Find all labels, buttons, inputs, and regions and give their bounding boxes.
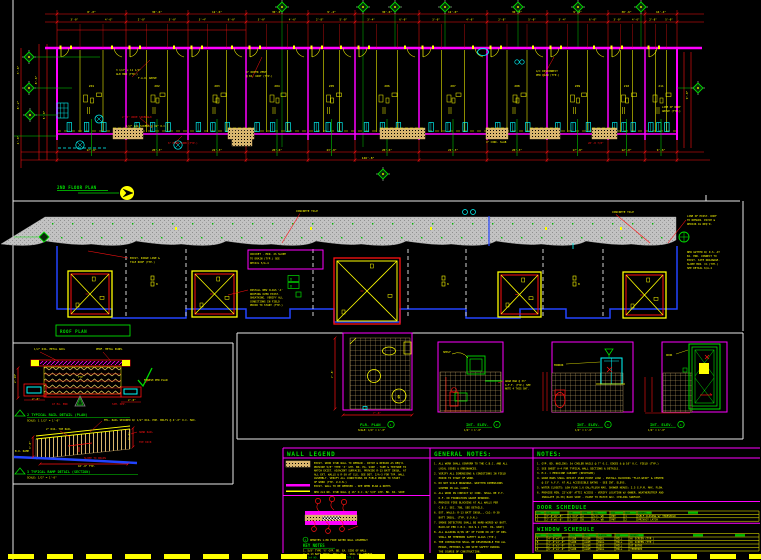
svg-text:4. ALL WOOD IN CONTACT W/ CONC: 4. ALL WOOD IN CONTACT W/ CONC. SHALL BE…	[434, 491, 504, 495]
roof-cricket-boxes	[68, 258, 666, 324]
svg-text:SHEATHING. VERIFY ALL: SHEATHING. VERIFY ALL	[250, 296, 283, 300]
svg-text:EXIST. SITE DRAINAGE.: EXIST. SITE DRAINAGE.	[687, 258, 720, 262]
general-notes-body: 1. ALL WORK SHALL CONFORM TO THE C.B.C. …	[434, 462, 508, 554]
svg-text:6" HIGH CURB (TYP.): 6" HIGH CURB (TYP.)	[168, 141, 198, 145]
legend-panel: WALL LEGENDGENERAL NOTES:NOTES:EXIST. WO…	[283, 448, 760, 560]
svg-text:A/C DISCONNECT: A/C DISCONNECT	[536, 69, 558, 73]
window-schedule-table: SYMSIZETYPEMATLGLAZINGFINREMARKSA4'-0"x4…	[536, 534, 760, 552]
svg-text:MIRROR: MIRROR	[554, 363, 564, 367]
svg-text:2'-0"x3'-0": 2'-0"x3'-0"	[548, 544, 565, 548]
svg-text:3'-6": 3'-6"	[16, 65, 20, 74]
svg-text:F.A.U. ABOVE: F.A.U. ABOVE	[138, 76, 157, 80]
svg-text:2'-0": 2'-0"	[32, 397, 40, 401]
svg-text:2'-8": 2'-8"	[498, 18, 506, 22]
svg-text:22'-3": 22'-3"	[212, 148, 222, 152]
svg-text:1/2" DIA. METAL RAIL: 1/2" DIA. METAL RAIL	[34, 347, 66, 351]
svg-text:3 1/2" x 11 1/4": 3 1/2" x 11 1/4"	[116, 68, 141, 72]
svg-text:3'-0"x4'-0": 3'-0"x4'-0"	[548, 540, 565, 544]
svg-text:B.O. RAMP: B.O. RAMP	[15, 449, 29, 453]
svg-text:1. GYP. BD. NAILING: 5d COOLER: 1. GYP. BD. NAILING: 5d COOLER NAILS @ 7…	[537, 462, 659, 466]
svg-text:12'-0": 12'-0"	[621, 148, 631, 152]
svg-text:NEW GUTTER W/ D.S. AT: NEW GUTTER W/ D.S. AT	[687, 250, 720, 254]
svg-text:1/4" = 1'-0": 1/4" = 1'-0"	[648, 429, 666, 432]
svg-text:SHELF: SHELF	[443, 350, 451, 354]
room-label: 204	[274, 84, 280, 88]
svg-text:8: 8	[447, 282, 449, 286]
svg-text:MILL: MILL	[616, 540, 623, 544]
svg-text:SLDR: SLDR	[570, 540, 577, 544]
svg-text:2'-8": 2'-8"	[649, 18, 657, 22]
svg-text:1: 1	[304, 538, 306, 542]
north-arrow-icon	[121, 187, 134, 200]
svg-text:30'-6": 30'-6"	[382, 10, 392, 14]
bottom-dashed-border	[8, 554, 761, 559]
svg-text:FINISH PER PLAN: FINISH PER PLAN	[144, 378, 168, 382]
svg-text:3'-0": 3'-0"	[613, 18, 621, 22]
room-label: 206	[384, 84, 390, 88]
svg-text:20'-6": 20'-6"	[272, 148, 282, 152]
svg-text:TEMPERED: TEMPERED	[630, 547, 643, 551]
svg-text:DETAIL 5/A-4: DETAIL 5/A-4	[250, 261, 269, 265]
svg-text:PRIOR TO START (TYP.): PRIOR TO START (TYP.)	[250, 303, 283, 307]
svg-text:GRAB BAR @ 33": GRAB BAR @ 33"	[505, 379, 527, 383]
svg-text:INSULATE (R-30) BACK SIDE - PA: INSULATE (R-30) BACK SIDE - PAINT TO MAT…	[537, 495, 642, 499]
svg-text:OF WORK (TYP. U.O.N.): OF WORK (TYP. U.O.N.)	[314, 480, 347, 484]
svg-text:GOVERN IN ALL CASES.: GOVERN IN ALL CASES.	[434, 486, 470, 490]
bath-floor-plan-detail: G7'-8"7'-6"FLR. PLAN1SCALE: 1/4" = 1'-0"	[330, 333, 413, 432]
svg-text:MATCH EXIST. ADJACENT SURFACES: MATCH EXIST. ADJACENT SURFACES. PROVIDE …	[314, 469, 407, 473]
svg-text:7. SMOKE DETECTORS SHALL BE HA: 7. SMOKE DETECTORS SHALL BE HARD-WIRED W…	[434, 520, 507, 524]
svg-text:6'-0": 6'-0"	[228, 18, 236, 22]
svg-text:17'-8": 17'-8"	[572, 148, 582, 152]
svg-text:PRIOR TO START OF WORK.: PRIOR TO START OF WORK.	[434, 476, 475, 480]
bath-elevation-detail-2: SHELFGRAB BAR @ 33"A.F.F. (TYP.) SEENOTE…	[438, 342, 531, 432]
svg-text:LINE OF EXIST. ROOF: LINE OF EXIST. ROOF	[687, 214, 717, 218]
bathroom-details-viewport: G7'-8"7'-6"FLR. PLAN1SCALE: 1/4" = 1'-0"…	[330, 333, 727, 432]
key-notes-title: KEY NOTES	[303, 543, 325, 548]
svg-text:17'-8": 17'-8"	[86, 148, 96, 152]
svg-text:20'-3": 20'-3"	[152, 148, 162, 152]
svg-text:1/4" = 1'-0": 1/4" = 1'-0"	[575, 429, 593, 432]
grid-bubbles	[22, 0, 705, 181]
svg-text:4'-6": 4'-6"	[105, 18, 113, 22]
svg-text:C.B.C. SEC. 708, SEE DETAILS.: C.B.C. SEC. 708, SEE DETAILS.	[434, 506, 484, 510]
cad-sheet: 3'-6"8'-2"4'-0"8'-6"5'-0"9'-0"2018'-0"3'…	[0, 0, 761, 560]
svg-text:4" DRYER VENT: 4" DRYER VENT	[246, 70, 267, 74]
svg-text:D: D	[290, 284, 292, 288]
svg-text:4" CONC. SLAB: 4" CONC. SLAB	[486, 140, 507, 144]
svg-text:W/ SCREEN (TYP.): W/ SCREEN (TYP.)	[630, 537, 654, 541]
svg-text:3'-4": 3'-4"	[367, 18, 375, 22]
svg-text:2. VERIFY ALL DIMENSIONS & CON: 2. VERIFY ALL DIMENSIONS & CONDITIONS IN…	[434, 471, 506, 475]
room-label: 203	[214, 84, 220, 88]
bath-elevation-detail-3: MIRRORINT. ELEV.31/4" = 1'-0"	[543, 342, 633, 432]
notes-title: NOTES:	[537, 451, 562, 458]
svg-text:4. GRAB BARS SHALL RESIST 250#: 4. GRAB BARS SHALL RESIST 250# POINT LOA…	[537, 476, 664, 480]
svg-text:ASSEMBLY. VERIFY ALL CONDITION: ASSEMBLY. VERIFY ALL CONDITIONS IN FIELD…	[314, 476, 400, 480]
svg-text:6. PROVIDE MIN. 22"x30" ATTIC: 6. PROVIDE MIN. 22"x30" ATTIC ACCESS - V…	[537, 490, 664, 494]
svg-text:ALUM: ALUM	[584, 540, 591, 544]
svg-text:H.C. WD: H.C. WD	[593, 517, 604, 521]
svg-text:ALL EXT. WALLS & R-30 AT CLG.: ALL EXT. WALLS & R-30 AT CLG. SEE DET. 2…	[314, 472, 405, 476]
svg-text:LINE OF ROOF: LINE OF ROOF	[662, 105, 681, 109]
svg-text:3. M.C. = MEDICINE CABINET (RE: 3. M.C. = MEDICINE CABINET (RECESSED)	[537, 471, 595, 475]
svg-text:2'-10": 2'-10"	[13, 373, 17, 383]
svg-text:2. SEE SHEET A-4 FOR TYPICAL W: 2. SEE SHEET A-4 FOR TYPICAL WALL SECTIO…	[537, 466, 620, 470]
detail-section-title: 3 TYPICAL RAMP DETAIL (SECTION)	[27, 470, 90, 474]
rail-detail-plan: 1/2" DIA. METAL RAILPERF. METAL PANELFIN…	[13, 347, 168, 423]
svg-text:7'-8": 7'-8"	[330, 370, 334, 378]
svg-text:8: 8	[156, 282, 158, 286]
svg-text:8: 8	[578, 282, 580, 286]
wall-legend-items: EXIST. WOOD STUD WALL TO REMAIN - PATCH …	[283, 461, 430, 496]
room-label: 201	[89, 84, 95, 88]
svg-text:SHALL BE TEMPERED SAFETY GLASS: SHALL BE TEMPERED SAFETY GLASS (TYP.)	[434, 535, 497, 539]
room-label: 209	[575, 84, 581, 88]
svg-text:S.C. WD: S.C. WD	[593, 514, 604, 518]
svg-text:4: 4	[680, 423, 682, 427]
svg-text:2" DIA. TOP RAIL: 2" DIA. TOP RAIL	[46, 427, 71, 431]
svg-text:22'-3": 22'-3"	[448, 148, 458, 152]
floor-plan-viewport: 3'-6"8'-2"4'-0"8'-6"5'-0"9'-0"2018'-0"3'…	[14, 0, 710, 200]
svg-text:ALUM: ALUM	[584, 547, 591, 551]
svg-text:W/ SCREEN (TYP.): W/ SCREEN (TYP.)	[630, 540, 654, 544]
svg-text:4'-0": 4'-0"	[16, 135, 20, 144]
svg-text:TILE ROOF (TYP.): TILE ROOF (TYP.)	[130, 260, 155, 264]
svg-text:PNT: PNT	[611, 514, 616, 518]
svg-text:SLOPE MIN. 1% (TYP.): SLOPE MIN. 1% (TYP.)	[687, 262, 719, 266]
svg-text:16'-4": 16'-4"	[656, 10, 666, 14]
svg-text:SLDR: SLDR	[570, 537, 577, 541]
svg-text:TYP: TYP	[78, 375, 83, 379]
bath-elevation-detail-4: DOORINT. ELEV.41/4" = 1'-0"	[645, 342, 727, 432]
room-label: 210	[624, 84, 630, 88]
svg-text:6. EXT. WALLS: R-13 BATT INSUL: 6. EXT. WALLS: R-13 BATT INSUL., CLG: R-…	[434, 511, 500, 515]
general-notes-title: GENERAL NOTES:	[434, 451, 492, 458]
svg-text:6'-0": 6'-0"	[399, 18, 407, 22]
svg-text:20'-3": 20'-3"	[512, 148, 522, 152]
svg-text:DUAL: DUAL	[598, 547, 605, 551]
svg-text:3. DO NOT SCALE DRAWINGS. WRIT: 3. DO NOT SCALE DRAWINGS. WRITTEN DIMENS…	[434, 481, 503, 485]
svg-text:CRICKET - MIN. 2% SLOPE: CRICKET - MIN. 2% SLOPE	[250, 252, 286, 256]
svg-text:9'-4": 9'-4"	[327, 10, 336, 14]
notes-body: 1. GYP. BD. NAILING: 5d COOLER NAILS @ 7…	[537, 462, 664, 500]
window-schedule-title: WINDOW SCHEDULE	[537, 527, 595, 533]
svg-text:23'-8": 23'-8"	[326, 148, 336, 152]
wall-section-detail: 1DENOTES 1-HR FIRE RATED WALL ASSEMBLYKE…	[303, 496, 374, 560]
svg-text:7'-6": 7'-6"	[373, 411, 381, 415]
room-label: 208	[514, 84, 520, 88]
svg-text:3'-0": 3'-0"	[70, 18, 78, 22]
svg-text:SEE DETAIL 6/A-4: SEE DETAIL 6/A-4	[687, 266, 712, 270]
ramp-detail-section: MTL. RAIL SECURED W/ 1/2" DIA. EXP. BOLT…	[14, 418, 196, 480]
svg-text:6'-0": 6'-0"	[589, 18, 597, 22]
svg-text:8. ALL GLAZING W/IN 18" OF FLO: 8. ALL GLAZING W/IN 18" OF FLOOR OR 24" …	[434, 530, 507, 534]
svg-text:1. ALL WORK SHALL CONFORM TO T: 1. ALL WORK SHALL CONFORM TO THE C.B.C. …	[434, 462, 508, 466]
svg-text:ALUM: ALUM	[584, 544, 591, 548]
svg-text:MTL. RAIL SECURED W/ 1/2" DIA.: MTL. RAIL SECURED W/ 1/2" DIA. EXP. BOLT…	[104, 418, 196, 422]
svg-text:8'-0": 8'-0"	[87, 10, 96, 14]
door-schedule-title: DOOR SCHEDULE	[537, 505, 587, 511]
svg-text:2'-8": 2'-8"	[316, 18, 324, 22]
svg-text:5'-0": 5'-0"	[169, 18, 177, 22]
svg-text:SLDR: SLDR	[570, 547, 577, 551]
svg-text:HAND RAIL: HAND RAIL	[139, 430, 153, 434]
svg-text:INSTALL NEW CLASS 'A': INSTALL NEW CLASS 'A'	[250, 288, 283, 292]
svg-text:20'-8 7/8": 20'-8 7/8"	[588, 141, 604, 145]
svg-text:MILL: MILL	[616, 537, 623, 541]
svg-text:2: 2	[496, 423, 498, 427]
svg-text:@ EA. UNIT (TYP.): @ EA. UNIT (TYP.)	[246, 74, 273, 78]
bath-detail-title: INT. ELEV.	[650, 422, 673, 427]
svg-text:16'-0" TYP.: 16'-0" TYP.	[78, 464, 95, 468]
svg-text:4'-0"x4'-0": 4'-0"x4'-0"	[548, 537, 565, 541]
svg-text:30'-6": 30'-6"	[621, 10, 631, 14]
svg-text:OBSC: OBSC	[598, 544, 605, 548]
overall-dimension: 146'-8"	[362, 156, 375, 160]
svg-text:SIM. OPP.: SIM. OPP.	[112, 402, 126, 406]
svg-text:PERF. METAL PANEL: PERF. METAL PANEL	[96, 347, 123, 351]
svg-text:1/4" = 1'-0": 1/4" = 1'-0"	[464, 429, 482, 432]
svg-text:PROVIDE 5/8" TYPE 'X' GYP. BD.: PROVIDE 5/8" TYPE 'X' GYP. BD. EA. SIDE …	[314, 465, 407, 469]
svg-text:3'-4": 3'-4"	[199, 18, 207, 22]
svg-text:3'-0": 3'-0"	[432, 18, 440, 22]
svg-text:SLOPE TO DRAIN: SLOPE TO DRAIN	[84, 456, 106, 460]
svg-text:DUAL: DUAL	[598, 540, 605, 544]
svg-text:6'-0"x4'-0": 6'-0"x4'-0"	[548, 547, 565, 551]
svg-text:1 3/4": 1 3/4"	[569, 514, 579, 518]
svg-text:EXIST. WALL TO BE REMOVED - SE: EXIST. WALL TO BE REMOVED - SEE DEMO PLA…	[314, 484, 391, 488]
room-label: 211	[658, 84, 664, 88]
roof-plan-viewport: 888CONCRETE TILECONCRETE TILECRICKET - M…	[1, 209, 720, 336]
svg-text:MILL: MILL	[616, 547, 623, 551]
room-label: 207	[450, 84, 456, 88]
svg-text:ABOVE (TYP.): ABOVE (TYP.)	[662, 109, 681, 113]
svg-text:2'-0" WIDE SIDEWALK: 2'-0" WIDE SIDEWALK	[122, 115, 152, 119]
svg-text:MILL: MILL	[616, 544, 623, 548]
svg-text:MEANS, METHODS & JOB SITE SAFE: MEANS, METHODS & JOB SITE SAFETY DURING	[434, 545, 500, 549]
svg-text:30'-6": 30'-6"	[152, 10, 162, 14]
bath-detail-title: INT. ELEV.	[466, 422, 489, 427]
svg-text:9. THE CONTRACTOR SHALL BE RES: 9. THE CONTRACTOR SHALL BE RESPONSIBLE F…	[434, 540, 506, 544]
svg-text:S.H.: S.H.	[570, 544, 576, 548]
svg-text:2'-0": 2'-0"	[128, 398, 136, 402]
svg-text:DOOR: DOOR	[666, 353, 673, 357]
svg-text:3: 3	[607, 423, 609, 427]
svg-text:12'-0": 12'-0"	[448, 10, 458, 14]
svg-text:CONDITIONS IN FIELD: CONDITIONS IN FIELD	[250, 299, 280, 303]
svg-text:SCALE: 1 1/2" = 1'-0": SCALE: 1 1/2" = 1'-0"	[27, 419, 60, 423]
svg-text:SELF-CLOSING W/ THRESHOLD: SELF-CLOSING W/ THRESHOLD	[638, 514, 676, 518]
svg-text:D.F. OR FOUNDATION GRADE REDWO: D.F. OR FOUNDATION GRADE REDWOOD.	[434, 496, 490, 500]
svg-text:1. 5/8" TYPE 'X' GYP. BD. EA.: 1. 5/8" TYPE 'X' GYP. BD. EA. SIDE OF WA…	[303, 549, 367, 553]
svg-text:A.F.F. (TYP.) SEE: A.F.F. (TYP.) SEE	[505, 383, 531, 387]
svg-text:3'-0": 3'-0"	[28, 441, 32, 449]
svg-text:REPAIR AS REQ'D.: REPAIR AS REQ'D.	[687, 222, 712, 226]
svg-text:12'-6": 12'-6"	[212, 10, 222, 14]
svg-text:SCALE: 1/2" = 1'-0": SCALE: 1/2" = 1'-0"	[27, 476, 57, 480]
svg-text:BACK-UP PER C.B.C. 310.9.1 (TY: BACK-UP PER C.B.C. 310.9.1 (TYP. EA. UNI…	[434, 525, 505, 529]
room-label: 202	[154, 84, 160, 88]
svg-text:3'-6": 3'-6"	[127, 432, 131, 440]
svg-text:ALUM: ALUM	[584, 537, 591, 541]
svg-text:THE COURSE OF CONSTRUCTION.: THE COURSE OF CONSTRUCTION.	[434, 550, 481, 554]
bath-detail-title: FLR. PLAN	[360, 422, 381, 427]
roof-plan-title: ROOF PLAN	[60, 329, 87, 334]
svg-text:TOE KICK: TOE KICK	[139, 440, 152, 444]
svg-text:TO REMAIN. PATCH &: TO REMAIN. PATCH &	[687, 218, 716, 222]
svg-text:4'-6": 4'-6"	[289, 18, 297, 22]
svg-text:1: 1	[390, 423, 392, 427]
svg-text:8'-2": 8'-2"	[16, 100, 20, 109]
bath-detail-title: INT. ELEV.	[577, 422, 600, 427]
wall-legend-title: WALL LEGEND	[287, 451, 336, 458]
concrete-tile-label: CONCRETE TILE	[296, 209, 318, 213]
concrete-tile-label: CONCRETE TILE	[612, 210, 634, 214]
svg-text:9'-6": 9'-6"	[657, 148, 666, 152]
svg-text:PER PLAN (TYP.): PER PLAN (TYP.)	[536, 73, 560, 77]
svg-text:2'-8"x6'-8": 2'-8"x6'-8"	[546, 517, 563, 521]
svg-text:2'-8": 2'-8"	[138, 18, 146, 22]
svg-text:@ 33" A.F.F. AT ALL ACCESSIBLE: @ 33" A.F.F. AT ALL ACCESSIBLE BATHS - S…	[537, 481, 626, 485]
svg-text:SCALE: 1/4" = 1'-0": SCALE: 1/4" = 1'-0"	[358, 429, 386, 432]
svg-text:D: D	[290, 277, 292, 281]
svg-text:NEW 2x4 WD. STUD WALL @ 16" O.: NEW 2x4 WD. STUD WALL @ 16" O.C. W/ 5/8"…	[314, 490, 405, 494]
svg-text:1 3/8": 1 3/8"	[569, 517, 579, 521]
svg-text:LOCAL CODES & ORDINANCES.: LOCAL CODES & ORDINANCES.	[434, 466, 478, 470]
svg-text:GLB HDR (TYP.): GLB HDR (TYP.)	[116, 72, 138, 76]
svg-text:20'-6": 20'-6"	[382, 148, 392, 152]
svg-text:AT EA. END: AT EA. END	[52, 402, 68, 406]
svg-text:5. PROVIDE FIRE BLOCKING AT AL: 5. PROVIDE FIRE BLOCKING AT ALL WALLS PE…	[434, 501, 498, 505]
svg-text:BATT INSUL. (TYP. U.O.N.): BATT INSUL. (TYP. U.O.N.)	[434, 515, 478, 519]
svg-text:3'-0": 3'-0"	[258, 18, 266, 22]
room-label: 205	[329, 84, 335, 88]
svg-text:5'-0": 5'-0"	[665, 18, 673, 22]
detail-plan-title: 2 TYPICAL RAIL DETAIL (PLAN)	[27, 413, 88, 417]
svg-text:EA. END. CONNECT TO: EA. END. CONNECT TO	[687, 254, 717, 258]
svg-text:1/2" LAG SCREWS @ 32" O.C.: 1/2" LAG SCREWS @ 32" O.C.	[126, 124, 167, 128]
svg-text:5. WATER CLOSETS: LOW FLOW 1.6: 5. WATER CLOSETS: LOW FLOW 1.6 GAL/FLUSH…	[537, 486, 664, 490]
svg-text:DUAL: DUAL	[598, 537, 605, 541]
svg-text:4'-6": 4'-6"	[632, 18, 640, 22]
svg-text:EXIST. RIDGE LINE &: EXIST. RIDGE LINE &	[130, 256, 160, 260]
svg-text:PRIVACY LATCH: PRIVACY LATCH	[638, 517, 658, 521]
svg-text:ROOFING OVER EXIST.: ROOFING OVER EXIST.	[250, 292, 280, 296]
svg-text:AT BATHS: AT BATHS	[630, 544, 643, 548]
svg-text:DENOTES 1-HR FIRE RATED WALL A: DENOTES 1-HR FIRE RATED WALL ASSEMBLY	[310, 538, 368, 542]
svg-text:3'-4": 3'-4"	[558, 18, 566, 22]
svg-text:5'-0": 5'-0"	[528, 18, 536, 22]
floor-plan-title: 2ND FLOOR PLAN	[57, 185, 97, 190]
svg-text:EXIST. WOOD STUD WALL TO REMAI: EXIST. WOOD STUD WALL TO REMAIN - PATCH …	[314, 461, 405, 465]
svg-text:TO DRAIN (TYP.) SEE: TO DRAIN (TYP.) SEE	[250, 257, 280, 261]
svg-text:8'-6": 8'-6"	[34, 75, 38, 84]
svg-text:PNT: PNT	[611, 517, 616, 521]
svg-text:5'-0": 5'-0"	[339, 18, 347, 22]
svg-text:9'-0": 9'-0"	[685, 90, 689, 99]
svg-text:4'-6": 4'-6"	[466, 18, 474, 22]
svg-text:3'-0"x6'-8": 3'-0"x6'-8"	[546, 514, 563, 518]
svg-text:NOTE 4 THIS SHT.: NOTE 4 THIS SHT.	[505, 387, 529, 391]
cad-drawing-canvas: 3'-6"8'-2"4'-0"8'-6"5'-0"9'-0"2018'-0"3'…	[0, 0, 761, 560]
door-schedule-table: SYMSIZETHKTYPEMATLFINHDWRREMARKS13'-0"x6…	[536, 511, 760, 521]
